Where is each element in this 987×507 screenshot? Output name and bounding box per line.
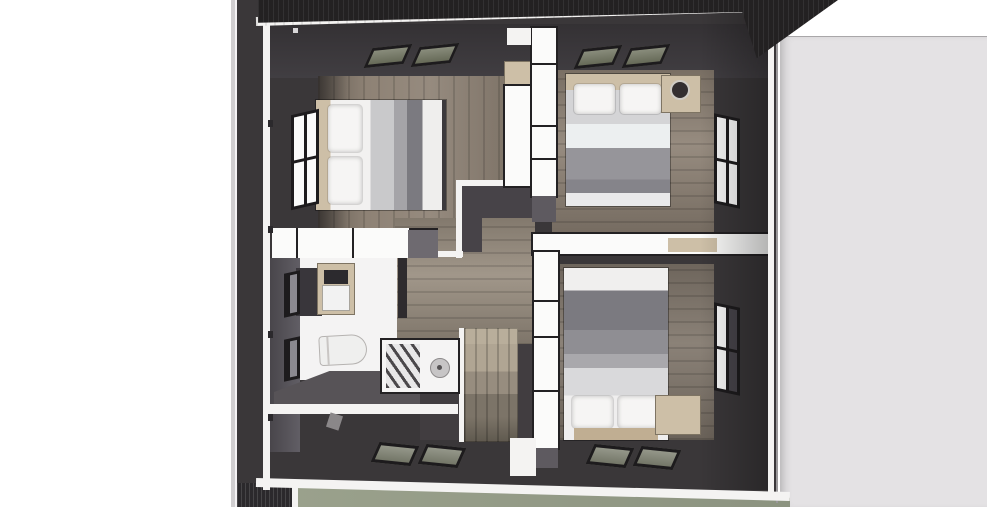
corner-post	[292, 486, 298, 507]
adjacent-roof-plane	[780, 36, 987, 507]
shower-drain	[430, 358, 450, 378]
center-wall-upper	[532, 28, 556, 196]
floorplan-scene	[0, 0, 987, 507]
east-wall-shade	[700, 10, 768, 490]
bathroom-south-wall	[270, 404, 458, 414]
wall-joint	[534, 336, 558, 338]
pillow	[572, 396, 613, 428]
wall-marker	[293, 28, 298, 33]
sink-basin	[323, 286, 349, 310]
window-pane	[307, 158, 317, 203]
pillow	[328, 157, 362, 204]
toilet	[319, 335, 366, 365]
bed-bottom-right	[564, 268, 668, 440]
pillow	[618, 396, 659, 428]
stair-rail-wall	[459, 328, 464, 442]
wall-anchor	[268, 226, 273, 233]
skylight	[418, 444, 467, 468]
shower-enclosure	[382, 340, 458, 392]
footboard	[574, 428, 658, 440]
east-wall-cut	[768, 5, 774, 497]
pillow	[574, 84, 615, 114]
hall-door-shadow	[398, 258, 407, 318]
pillow	[328, 105, 362, 152]
north-wall-opening	[507, 28, 531, 45]
closet-door	[298, 228, 352, 258]
neighbor-wall-strip	[229, 0, 237, 507]
staircase	[464, 328, 518, 442]
closet-door	[272, 228, 296, 258]
skylight	[633, 446, 682, 470]
bed-top-right	[566, 74, 670, 206]
wall-anchor	[268, 414, 273, 421]
wardrobe-top	[505, 62, 532, 86]
skylight	[586, 444, 635, 468]
window-pane	[294, 115, 304, 160]
wardrobe	[505, 86, 532, 186]
east-edge-line	[776, 5, 778, 503]
window-west	[291, 109, 319, 210]
south-wall-opening	[510, 438, 536, 476]
wall-joint	[532, 63, 556, 65]
center-wall-lower	[534, 252, 558, 448]
shower-glass-panel	[386, 344, 420, 388]
nightstand	[656, 396, 700, 434]
wall-joint	[532, 125, 556, 127]
window-pane	[294, 161, 304, 206]
vanity-mirror	[324, 270, 348, 284]
round-mirror	[670, 80, 690, 100]
wall-joint	[534, 390, 558, 392]
stairwell-half-wall	[462, 186, 482, 252]
closet-cabinet-gray	[408, 230, 438, 258]
window-pane	[307, 112, 317, 157]
wall-joint	[534, 300, 558, 302]
bed-top-left	[316, 100, 446, 210]
wall-anchor	[268, 120, 273, 127]
wall-anchor	[268, 331, 273, 338]
bathroom-window	[284, 336, 300, 381]
skylight	[371, 442, 420, 466]
closet-door	[354, 228, 409, 258]
wall-cap	[532, 196, 556, 222]
wall-cap	[534, 448, 558, 468]
bathroom-window	[284, 270, 300, 317]
wall-joint	[532, 158, 556, 160]
pillow	[620, 84, 661, 114]
